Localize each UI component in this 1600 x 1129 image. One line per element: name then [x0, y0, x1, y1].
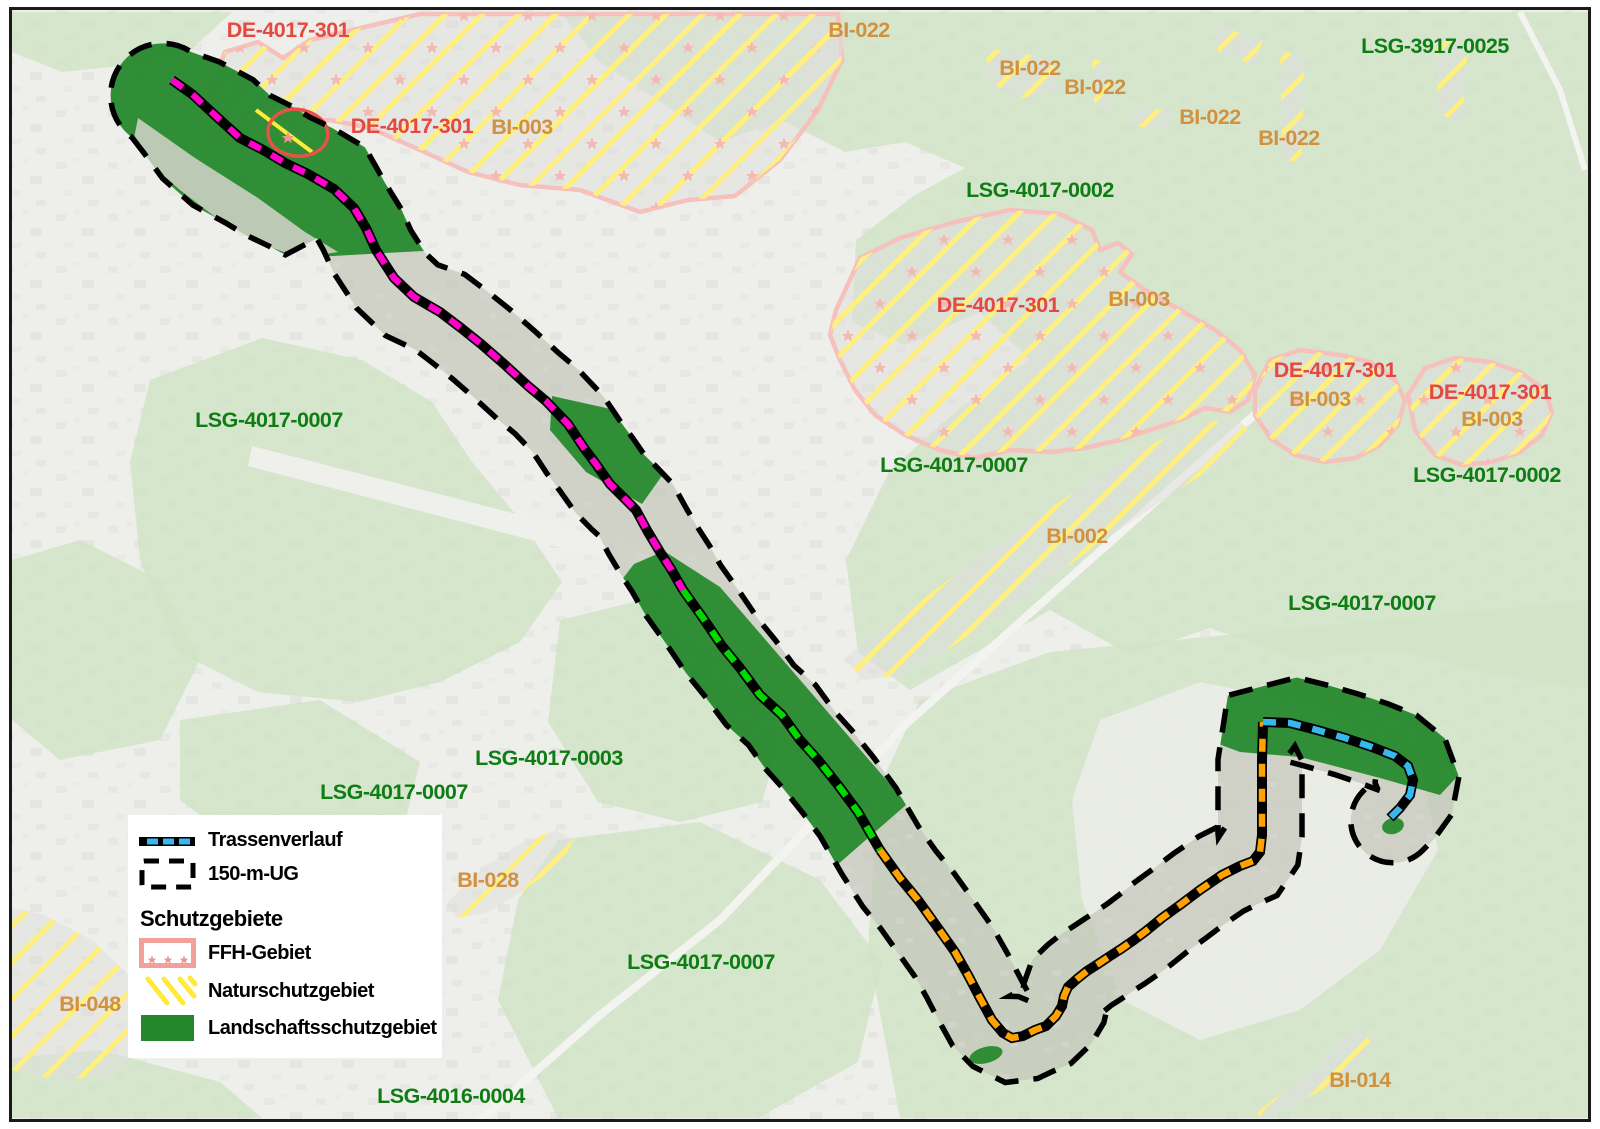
- map-label: BI-022: [999, 56, 1061, 80]
- map-label: LSG-4017-0007: [880, 453, 1028, 477]
- map-label: DE-4017-301: [351, 114, 474, 138]
- map-label: BI-014: [1329, 1068, 1391, 1092]
- map-label: LSG-4017-0007: [195, 408, 343, 432]
- map-label: BI-022: [828, 18, 890, 42]
- legend-panel: Trassenverlauf 150-m-UG Schutzgebiete FF…: [128, 815, 442, 1058]
- map-label: LSG-4016-0004: [377, 1084, 525, 1108]
- map-label: BI-028: [457, 868, 519, 892]
- map-label: LSG-4017-0002: [1413, 463, 1561, 487]
- legend-item-lsg: Landschaftsschutzgebiet: [138, 1012, 430, 1044]
- map-label: LSG-4017-0007: [1288, 591, 1436, 615]
- map-label: LSG-4017-0003: [475, 746, 623, 770]
- map-label: DE-4017-301: [227, 18, 350, 42]
- trasse-swatch-icon: [138, 833, 198, 849]
- ffh-swatch-icon: [138, 936, 198, 970]
- map-label: BI-022: [1179, 105, 1241, 129]
- map-label: BI-003: [1289, 387, 1351, 411]
- legend-item-nsg: Naturschutzgebiet: [138, 974, 430, 1008]
- map-label: LSG-4017-0002: [966, 178, 1114, 202]
- legend-item-trassenverlauf: Trassenverlauf: [138, 829, 430, 852]
- legend-label: Landschaftsschutzgebiet: [208, 1017, 437, 1040]
- map-label: BI-022: [1064, 75, 1126, 99]
- map-label: BI-003: [1461, 407, 1523, 431]
- map-label: LSG-4017-0007: [627, 950, 775, 974]
- map-label: BI-003: [1108, 287, 1170, 311]
- map-label: DE-4017-301: [1429, 380, 1552, 404]
- map-label: LSG-4017-0007: [320, 780, 468, 804]
- map-label: DE-4017-301: [937, 293, 1060, 317]
- legend-item-ffh: FFH-Gebiet: [138, 936, 430, 970]
- nsg-swatch-icon: [138, 974, 198, 1008]
- legend-header: Schutzgebiete: [140, 906, 430, 932]
- ug-swatch-icon: [138, 856, 198, 892]
- map-label: BI-003: [491, 115, 553, 139]
- map-label: BI-002: [1046, 524, 1108, 548]
- map-label: BI-022: [1258, 126, 1320, 150]
- legend-label: 150-m-UG: [208, 863, 298, 886]
- map-label: BI-048: [59, 992, 121, 1016]
- legend-label: Trassenverlauf: [208, 829, 342, 852]
- map-label: DE-4017-301: [1274, 358, 1397, 382]
- map-page: DE-4017-301BI-022BI-022BI-022LSG-3917-00…: [0, 0, 1600, 1129]
- lsg-swatch-icon: [138, 1012, 198, 1044]
- legend-item-ug: 150-m-UG: [138, 856, 430, 892]
- legend-label: Naturschutzgebiet: [208, 980, 374, 1003]
- legend-label: FFH-Gebiet: [208, 942, 311, 965]
- map-label: LSG-3917-0025: [1361, 34, 1509, 58]
